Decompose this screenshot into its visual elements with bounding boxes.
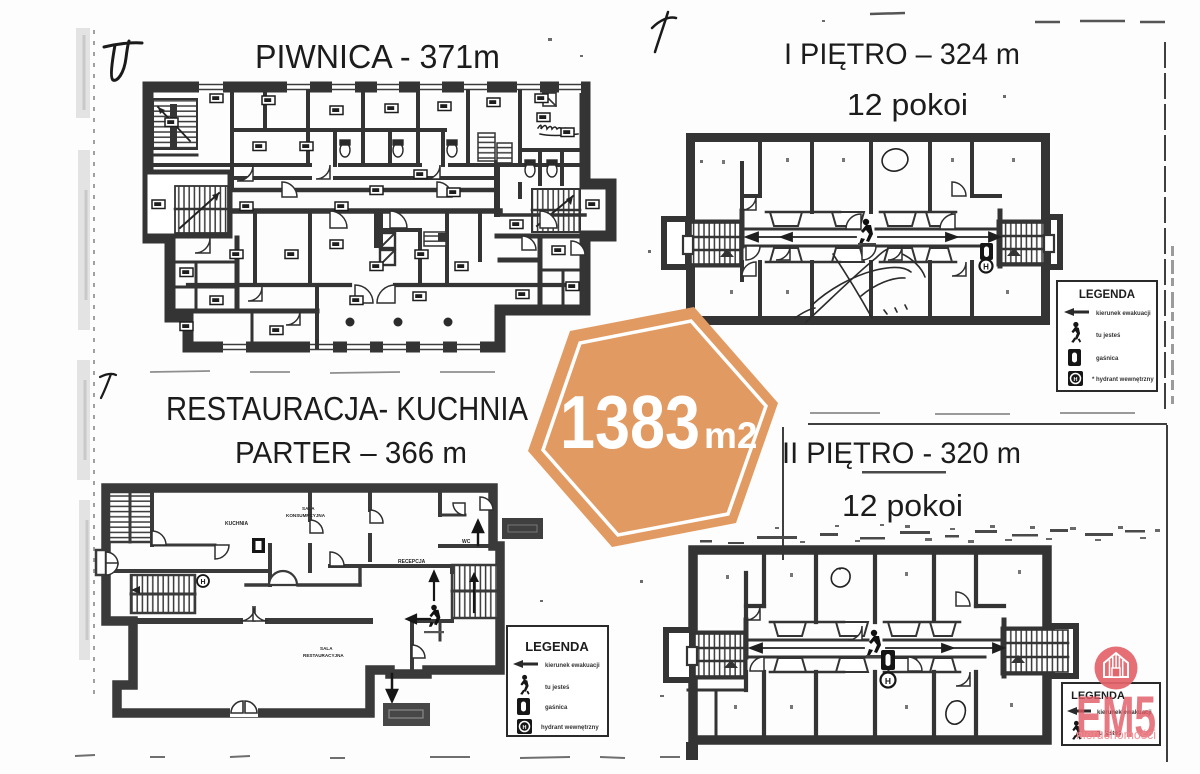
svg-text:SALA: SALA — [302, 506, 315, 511]
svg-text:PIWNICA - 371m: PIWNICA - 371m — [255, 38, 500, 75]
svg-text:H: H — [983, 263, 989, 272]
svg-text:LEGENDA: LEGENDA — [1079, 289, 1135, 301]
svg-text:RESTAURACJA- KUCHNIA: RESTAURACJA- KUCHNIA — [166, 390, 528, 427]
svg-text:RECEPCJA: RECEPCJA — [398, 559, 426, 565]
svg-text:II PIĘTRO - 320 m: II PIĘTRO - 320 m — [782, 437, 1021, 470]
svg-text:hydrant wewnętrzny: hydrant wewnętrzny — [541, 725, 599, 731]
svg-text:kierunek ewakuacji: kierunek ewakuacji — [545, 663, 600, 669]
svg-text:tu jesteś: tu jesteś — [545, 685, 570, 691]
svg-text:gaśnica: gaśnica — [545, 705, 568, 711]
svg-text:nieruchomości: nieruchomości — [1076, 727, 1156, 742]
svg-text:SALA: SALA — [320, 646, 333, 651]
svg-text:KUCHNIA: KUCHNIA — [225, 521, 248, 527]
svg-text:H: H — [885, 676, 891, 686]
svg-text:LEGENDA: LEGENDA — [525, 639, 589, 654]
svg-text:m2: m2 — [704, 415, 757, 456]
svg-text:I PIĘTRO – 324 m: I PIĘTRO – 324 m — [784, 38, 1020, 71]
svg-text:12 pokoi: 12 pokoi — [842, 488, 963, 523]
svg-text:RESTAURACYJNA: RESTAURACYJNA — [303, 653, 344, 658]
svg-text:12 pokoi: 12 pokoi — [847, 87, 968, 122]
svg-text:WC: WC — [462, 539, 471, 545]
svg-text:tu jesteś: tu jesteś — [1096, 333, 1121, 339]
svg-text:kierunek ewakuacji: kierunek ewakuacji — [1096, 311, 1151, 317]
svg-text:1383: 1383 — [560, 380, 700, 464]
svg-text:H: H — [200, 579, 205, 586]
svg-text:gaśnica: gaśnica — [1096, 356, 1119, 362]
svg-text:H: H — [1074, 377, 1078, 383]
svg-text:KONSUMPCYJNA: KONSUMPCYJNA — [286, 513, 326, 518]
svg-text:PARTER – 366 m: PARTER – 366 m — [235, 435, 467, 470]
svg-text:H: H — [523, 725, 527, 731]
svg-text:* hydrant wewnętrzny: * hydrant wewnętrzny — [1092, 377, 1154, 383]
